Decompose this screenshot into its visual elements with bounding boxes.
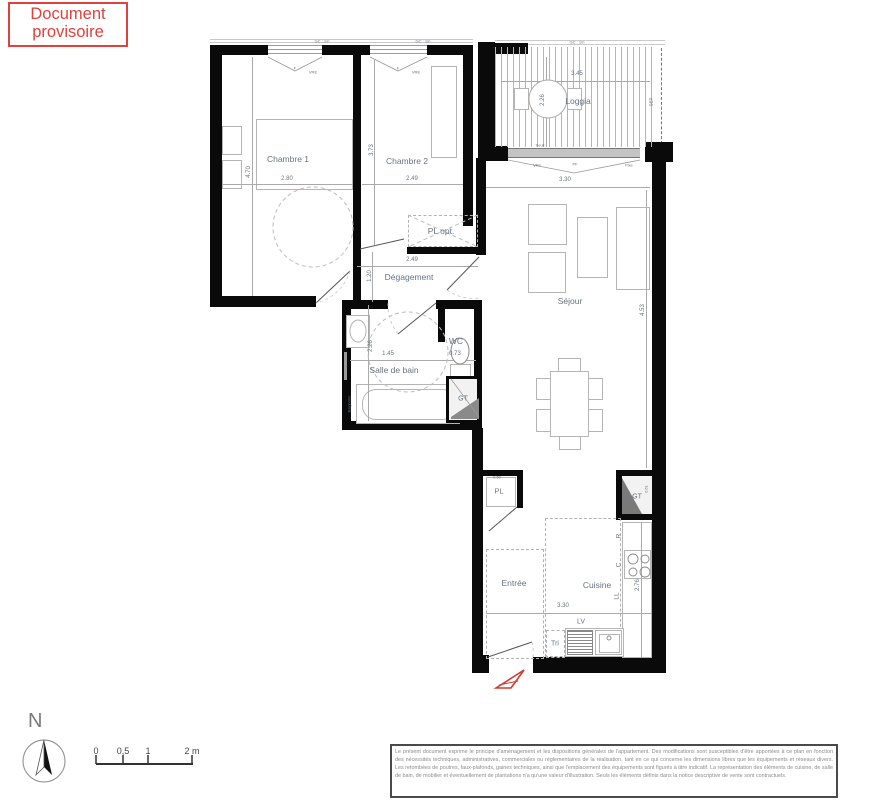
dim-chambre1-w: 2.80 — [281, 176, 293, 182]
dim-chambre2-h: 3.73 — [369, 144, 375, 156]
dining-chair — [558, 358, 581, 372]
window-bay-sejour — [508, 148, 640, 158]
dim-sdb-h: 2.26 — [368, 340, 374, 352]
wall-entree-left — [472, 428, 483, 673]
door-leaf-chambre1 — [316, 271, 350, 303]
wall-chambre1-bottom — [210, 296, 316, 307]
label-cooktop-c: C — [616, 563, 623, 568]
sofa — [616, 207, 650, 290]
wall-right-exterior — [652, 158, 666, 673]
loggia-chair — [514, 88, 529, 110]
armchair — [528, 204, 567, 245]
stamp-line1: Document — [10, 6, 126, 24]
label-baignoire: Baignoire — [347, 396, 352, 413]
wall-sdb-top-a — [342, 300, 388, 309]
dim-line — [368, 305, 369, 421]
label-guardrail: GC : 1m — [315, 39, 330, 44]
room-label-chambre1: Chambre 1 — [267, 154, 309, 164]
nightstand — [222, 126, 242, 155]
door-leaf-sejour — [447, 257, 479, 290]
door-leaf-entree — [489, 507, 517, 531]
facade-line — [210, 42, 473, 43]
label-gt-bathroom: GT — [458, 396, 468, 403]
turning-circle-chambre1 — [273, 187, 353, 267]
room-label-chambre2: Chambre 2 — [386, 156, 428, 166]
label-pl-opt: PL opt. — [428, 226, 455, 236]
entrance-arrow-inner — [499, 681, 518, 685]
wall-pl-right — [517, 470, 523, 508]
sink-bowl — [599, 634, 620, 653]
label-guardrail: GC : 1m — [416, 39, 431, 44]
wall-top-a — [210, 45, 268, 55]
room-label-entree: Entrée — [501, 578, 526, 588]
facade-line — [210, 39, 473, 40]
wall-chambre2-right — [463, 45, 473, 226]
room-label-sdb: Salle de bain — [369, 365, 418, 375]
dim-cuisine-w: 3.30 — [557, 603, 569, 609]
dim-line — [646, 190, 647, 468]
label-window-f: F — [294, 66, 296, 71]
dim-loggia-w: 3.45 — [571, 71, 583, 77]
washbasin — [346, 315, 370, 348]
dim-line — [252, 57, 253, 296]
room-label-wc: WC — [449, 336, 463, 346]
sep-dashed-line — [661, 48, 662, 144]
dining-chair — [536, 409, 551, 432]
door-leaf-sdb — [398, 303, 436, 334]
door-arc-sejour — [447, 290, 479, 298]
floor-plan-page: Document provisoire — [0, 0, 872, 800]
stamp-line2: provisoire — [10, 24, 126, 42]
dim-line — [546, 57, 547, 147]
dining-chair — [536, 378, 551, 400]
label-fridge-r: R — [616, 534, 623, 539]
dining-chair — [559, 436, 581, 450]
provisional-stamp: Document provisoire — [8, 2, 128, 47]
dim-line — [357, 266, 478, 267]
label-bay-pf: PF — [572, 162, 577, 167]
label-pl: PL — [494, 487, 503, 496]
mirror — [344, 352, 347, 380]
wall-bottom — [533, 657, 665, 673]
dim-chambre2-w: 2.49 — [406, 176, 418, 182]
wall-wc-partition — [438, 300, 445, 342]
door-arc-sdb — [388, 303, 398, 334]
dim-sejour-w: 3.30 — [559, 177, 571, 183]
wall-gt-cuisine-bottom — [616, 514, 658, 520]
dining-chair — [588, 409, 603, 432]
label-tri: Tri — [551, 641, 559, 648]
label-seuil: Seuil — [536, 143, 545, 148]
scale-label-0: 0 — [93, 746, 98, 756]
wall-loggia-left — [478, 42, 495, 150]
dim-sdb-w: 1.45 — [382, 351, 394, 357]
window-chambre2 — [370, 45, 427, 55]
dim-line — [486, 187, 650, 188]
label-window-f: F — [397, 66, 399, 71]
room-label-sejour: Séjour — [558, 296, 583, 306]
wall-chambre-divider — [353, 50, 361, 307]
label-lv: LV — [577, 619, 585, 626]
label-sep: SEP — [649, 97, 654, 106]
dim-sejour-h: 4.53 — [640, 304, 646, 316]
dining-table — [550, 371, 589, 437]
legal-disclaimer: Le présent document exprime le principe … — [390, 744, 838, 798]
bathtub-inner — [362, 389, 456, 420]
dim-cuisine-h: 2.76 — [635, 579, 641, 591]
room-label-loggia: Loggia — [565, 96, 591, 106]
label-gt-cuisine: GT — [632, 494, 642, 501]
label-bay-fixe: Fixe — [625, 163, 633, 168]
turning-circle-sdb — [368, 312, 448, 392]
compass-needle-dark — [44, 740, 52, 775]
door-arc-chambre1 — [316, 271, 350, 303]
label-window-vre: VRE — [412, 70, 420, 75]
dim-degagement-h: 1.20 — [367, 270, 373, 282]
compass-needle-light — [36, 740, 44, 775]
dim-line — [486, 613, 652, 614]
dim-degagement-w: 2.49 — [406, 257, 418, 263]
dim-line — [501, 81, 650, 82]
dishwasher — [567, 630, 593, 655]
coffee-table — [577, 217, 608, 278]
dim-pl: 0.60 — [493, 475, 501, 480]
label-washer-ll: LL — [614, 592, 621, 599]
dim-line — [222, 184, 353, 185]
room-label-cuisine: Cuisine — [583, 580, 611, 590]
scale-label-1: 1 — [145, 746, 150, 756]
door-leaf-chambre2 — [360, 239, 404, 249]
window-chambre1 — [268, 45, 322, 55]
scale-label-05: 0,5 — [117, 746, 130, 756]
north-compass-icon — [23, 740, 65, 782]
wall-pl-opt-bottom — [407, 247, 486, 254]
cooktop — [624, 550, 651, 579]
wall-chambre1-left — [210, 45, 222, 307]
bed-chambre2 — [431, 66, 457, 158]
scale-label-2m: 2 m — [184, 746, 199, 756]
label-window-vre: VRE — [309, 70, 317, 75]
dim-line — [641, 522, 642, 658]
north-label: N — [28, 710, 42, 733]
dim-chambre1-h: 4.70 — [246, 166, 252, 178]
armchair — [528, 252, 566, 293]
dining-chair — [588, 378, 603, 400]
wall-top-pier — [322, 45, 370, 55]
label-guardrail: GC : 1m — [570, 40, 585, 45]
dim-line — [362, 184, 463, 185]
label-bay-vre: VRe — [533, 163, 541, 168]
dim-wc-w: 0.73 — [449, 351, 461, 357]
entrance-arrow-icon — [496, 670, 524, 688]
room-label-degagement: Dégagement — [385, 272, 434, 282]
dim-loggia-h: 2.26 — [540, 94, 546, 106]
dim-gt-cuisine: 0.61 — [644, 485, 649, 493]
entree-zone — [486, 549, 544, 659]
